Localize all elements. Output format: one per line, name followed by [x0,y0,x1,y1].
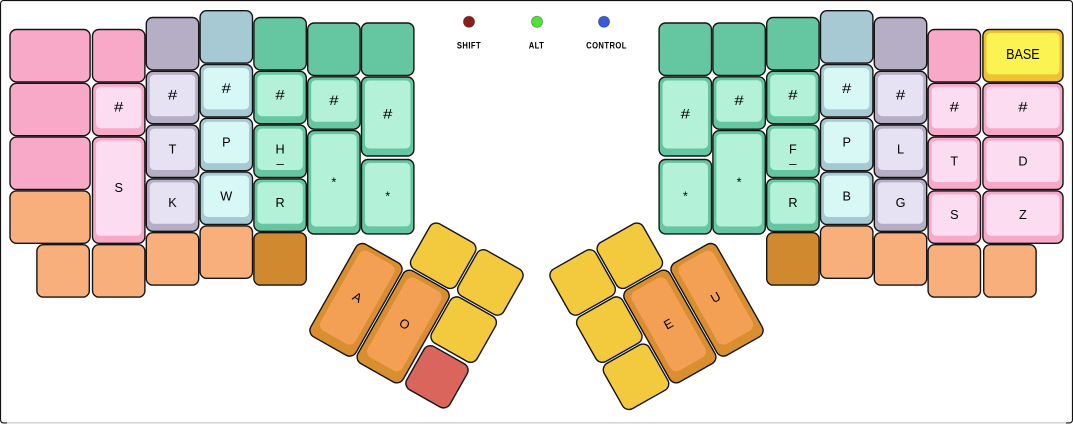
svg-text:#: # [168,88,178,103]
svg-text:R: R [276,196,285,210]
svg-text:G: G [896,196,906,210]
svg-text:#: # [681,107,691,122]
svg-text:L: L [897,142,904,156]
svg-text:SHIFT: SHIFT [457,40,481,51]
svg-text:K: K [168,196,177,210]
svg-text:_: _ [788,151,797,165]
svg-text:#: # [842,81,852,96]
svg-text:W: W [220,189,232,203]
svg-text:#: # [383,107,393,122]
svg-text:#: # [896,88,906,103]
svg-text:#: # [1018,100,1028,115]
svg-text:P: P [842,136,850,150]
svg-text:S: S [950,208,958,222]
svg-text:B: B [842,189,850,203]
svg-text:#: # [950,100,960,115]
svg-text:*: * [737,175,742,189]
svg-text:*: * [385,190,390,204]
svg-text:#: # [114,100,124,115]
svg-text:#: # [329,93,339,108]
svg-text:#: # [734,93,744,108]
svg-text:P: P [222,136,230,150]
svg-text:ALT: ALT [529,40,545,51]
svg-text:#: # [788,88,798,103]
svg-text:#: # [275,88,285,103]
svg-text:#: # [222,81,232,96]
svg-text:BASE: BASE [1006,45,1040,62]
svg-text:T: T [169,142,177,156]
svg-text:_: _ [276,151,285,165]
svg-text:*: * [331,175,336,189]
svg-text:CONTROL: CONTROL [586,40,627,51]
svg-text:*: * [683,190,688,204]
svg-text:D: D [1018,154,1027,168]
svg-text:Z: Z [1019,208,1027,222]
svg-text:R: R [788,196,797,210]
svg-text:S: S [114,181,122,195]
svg-text:T: T [950,154,958,168]
